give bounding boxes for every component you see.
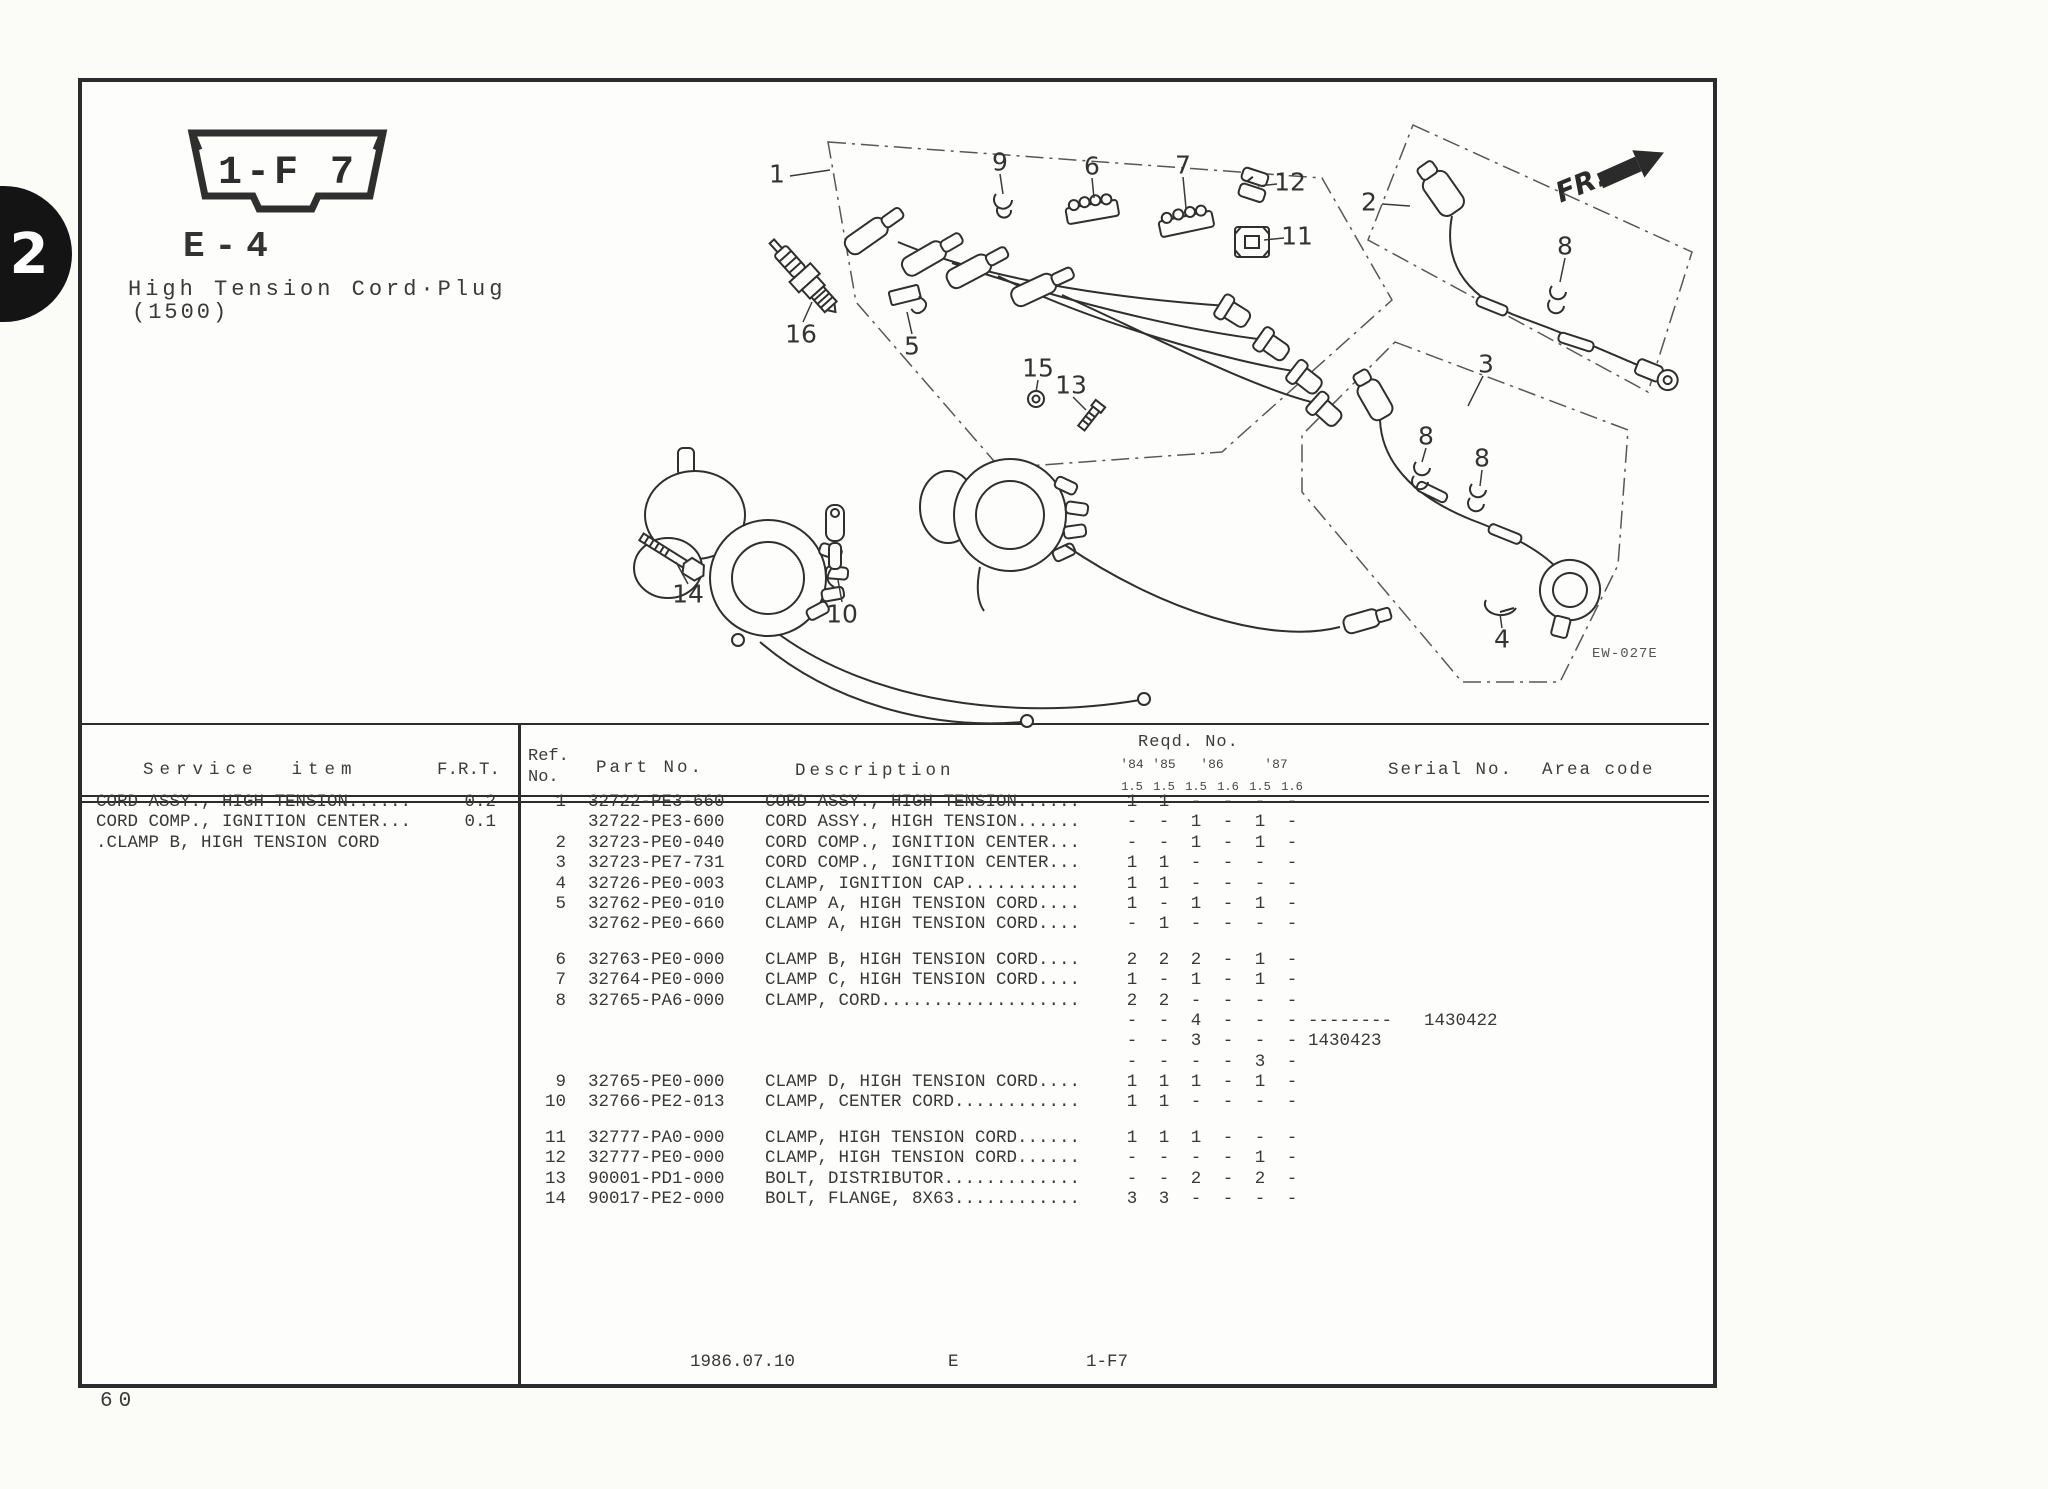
description: CORD COMP., IGNITION CENTER... <box>765 853 1080 873</box>
callout-9: 9 <box>992 148 1008 177</box>
qty: 2 <box>1180 1169 1212 1189</box>
qty: 4 <box>1180 1011 1212 1031</box>
description: CORD ASSY., HIGH TENSION...... <box>765 812 1080 832</box>
qty: - <box>1212 914 1244 934</box>
qty: 3 <box>1244 1052 1276 1072</box>
part-no: 90017-PE2-000 <box>588 1189 725 1209</box>
qty: 1 <box>1180 894 1212 914</box>
description: CLAMP C, HIGH TENSION CORD.... <box>765 970 1080 990</box>
qty: 1 <box>1148 792 1180 812</box>
qty: - <box>1212 1052 1244 1072</box>
qty: - <box>1276 1128 1308 1148</box>
callout-8b: 8 <box>1418 422 1434 451</box>
qty: - <box>1148 894 1180 914</box>
part-no-header: Part No. <box>596 758 704 778</box>
qty: - <box>1180 853 1212 873</box>
qty: - <box>1244 1128 1276 1148</box>
part-no: 32722-PE3-600 <box>588 812 725 832</box>
qty: - <box>1148 1148 1180 1168</box>
part-no: 32764-PE0-000 <box>588 970 725 990</box>
page-title: E-4 <box>183 226 278 267</box>
footer-section: E <box>948 1352 959 1372</box>
ref-header: Ref. <box>528 747 569 766</box>
qty: 1 <box>1244 812 1276 832</box>
qty: 2 <box>1116 991 1148 1011</box>
callout-3: 3 <box>1478 350 1494 379</box>
qty: - <box>1180 792 1212 812</box>
table-row: 10 32766-PE2-013 CLAMP, CENTER CORD.....… <box>0 1092 2048 1112</box>
qty: - <box>1180 1148 1212 1168</box>
qty: - <box>1148 970 1180 990</box>
qty: - <box>1116 1011 1148 1031</box>
qty: - <box>1212 1031 1244 1051</box>
qty: - <box>1276 894 1308 914</box>
qty: 1 <box>1244 970 1276 990</box>
qty: - <box>1148 1031 1180 1051</box>
description: CLAMP A, HIGH TENSION CORD.... <box>765 914 1080 934</box>
qty: - <box>1276 991 1308 1011</box>
qty: 1 <box>1148 914 1180 934</box>
qty: - <box>1276 1072 1308 1092</box>
qty: 1 <box>1180 1128 1212 1148</box>
qty: 3 <box>1180 1031 1212 1051</box>
ref-no: 5 <box>520 894 566 914</box>
qty: - <box>1116 833 1148 853</box>
qty: 1 <box>1116 792 1148 812</box>
description: CLAMP, HIGH TENSION CORD...... <box>765 1128 1080 1148</box>
part-no: 32765-PE0-000 <box>588 1072 725 1092</box>
callout-15: 15 <box>1022 354 1054 383</box>
ref-no: 3 <box>520 853 566 873</box>
qty: - <box>1148 1052 1180 1072</box>
callout-4: 4 <box>1494 625 1510 654</box>
qty: - <box>1180 1052 1212 1072</box>
qty: 1 <box>1116 874 1148 894</box>
qty: - <box>1212 792 1244 812</box>
ref-no: 10 <box>520 1092 566 1112</box>
qty: 3 <box>1116 1189 1148 1209</box>
qty: 1 <box>1244 1148 1276 1168</box>
qty: - <box>1212 1169 1244 1189</box>
qty: - <box>1180 991 1212 1011</box>
part-no: 32722-PE3-660 <box>588 792 725 812</box>
qty: 2 <box>1180 950 1212 970</box>
section-index-number: 2 <box>10 222 49 287</box>
table-row: 32722-PE3-600 CORD ASSY., HIGH TENSION..… <box>0 812 2048 832</box>
table-row: --3--- 1430423 <box>0 1031 2048 1051</box>
page-number: 60 <box>100 1390 137 1413</box>
description: CLAMP, CENTER CORD............ <box>765 1092 1080 1112</box>
qty: 1 <box>1116 970 1148 990</box>
qty: 2 <box>1148 950 1180 970</box>
qty: - <box>1148 812 1180 832</box>
qty: 1 <box>1148 1092 1180 1112</box>
qty: - <box>1244 1092 1276 1112</box>
qty: 1 <box>1180 812 1212 832</box>
qty: - <box>1276 1189 1308 1209</box>
qty: - <box>1276 853 1308 873</box>
part-no: 32777-PA0-000 <box>588 1128 725 1148</box>
callout-8a: 8 <box>1557 232 1573 261</box>
part-no: 90001-PD1-000 <box>588 1169 725 1189</box>
qty: - <box>1212 812 1244 832</box>
table-top-rule <box>78 723 1709 725</box>
callout-7: 7 <box>1175 151 1191 180</box>
table-row: 3 32723-PE7-731 CORD COMP., IGNITION CEN… <box>0 853 2048 873</box>
qty: - <box>1212 874 1244 894</box>
qty: - <box>1148 1011 1180 1031</box>
table-row: 2 32723-PE0-040 CORD COMP., IGNITION CEN… <box>0 833 2048 853</box>
qty: - <box>1276 1011 1308 1031</box>
serial-no: -------- <box>1308 1011 1392 1031</box>
ref-no: 2 <box>520 833 566 853</box>
qty: - <box>1276 792 1308 812</box>
callout-16: 16 <box>785 320 817 349</box>
ref-no: 12 <box>520 1148 566 1168</box>
description: CLAMP B, HIGH TENSION CORD.... <box>765 950 1080 970</box>
qty: - <box>1276 1052 1308 1072</box>
part-no: 32726-PE0-003 <box>588 874 725 894</box>
qty: 1 <box>1116 894 1148 914</box>
ref-no: 9 <box>520 1072 566 1092</box>
ref-no: 13 <box>520 1169 566 1189</box>
qty: 1 <box>1244 950 1276 970</box>
qty: 1 <box>1148 1072 1180 1092</box>
callout-6: 6 <box>1084 152 1100 181</box>
service-item-header: Service item <box>143 760 358 780</box>
table-row: 14 90017-PE2-000 BOLT, FLANGE, 8X63.....… <box>0 1189 2048 1209</box>
part-no: 32766-PE2-013 <box>588 1092 725 1112</box>
qty: 1 <box>1148 1128 1180 1148</box>
table-row: 1 32722-PE3-660 CORD ASSY., HIGH TENSION… <box>0 792 2048 812</box>
qty: - <box>1180 914 1212 934</box>
qty: - <box>1212 1072 1244 1092</box>
table-row: 6 32763-PE0-000 CLAMP B, HIGH TENSION CO… <box>0 950 2048 970</box>
diagram-image-code: EW-027E <box>1592 646 1658 662</box>
qty: 1 <box>1244 894 1276 914</box>
serial-no-header: Serial No. <box>1388 760 1513 780</box>
part-no: 32723-PE7-731 <box>588 853 725 873</box>
qty: - <box>1244 874 1276 894</box>
qty: - <box>1276 1169 1308 1189</box>
qty: - <box>1244 914 1276 934</box>
callout-12: 12 <box>1274 168 1306 197</box>
year-header-85: '85 <box>1144 757 1184 772</box>
qty: 2 <box>1116 950 1148 970</box>
qty: - <box>1276 1148 1308 1168</box>
callout-5: 5 <box>904 332 920 361</box>
page-subtitle: High Tension Cord·Plug <box>128 277 506 302</box>
qty: 1 <box>1180 833 1212 853</box>
callout-1: 1 <box>769 160 785 189</box>
qty: 1 <box>1148 874 1180 894</box>
qty: 1 <box>1180 970 1212 990</box>
qty: - <box>1276 874 1308 894</box>
table-row: 9 32765-PE0-000 CLAMP D, HIGH TENSION CO… <box>0 1072 2048 1092</box>
callout-14: 14 <box>672 580 704 609</box>
qty: - <box>1276 812 1308 832</box>
qty: - <box>1276 950 1308 970</box>
frt-header: F.R.T. <box>437 760 500 780</box>
table-row: 13 90001-PD1-000 BOLT, DISTRIBUTOR......… <box>0 1169 2048 1189</box>
qty: 1 <box>1116 1128 1148 1148</box>
serial-no: 1430423 <box>1308 1031 1382 1051</box>
qty: 3 <box>1148 1189 1180 1209</box>
ref-no: 11 <box>520 1128 566 1148</box>
qty: - <box>1212 1011 1244 1031</box>
section-index-tab: 2 <box>0 186 72 322</box>
part-no: 32763-PE0-000 <box>588 950 725 970</box>
qty: - <box>1212 894 1244 914</box>
qty: 1 <box>1116 853 1148 873</box>
qty: - <box>1148 833 1180 853</box>
qty: - <box>1116 1169 1148 1189</box>
description: CLAMP, IGNITION CAP........... <box>765 874 1080 894</box>
ref-no: 1 <box>520 792 566 812</box>
ref-no-header: No. <box>528 768 559 787</box>
qty: - <box>1244 1189 1276 1209</box>
qty: - <box>1116 1031 1148 1051</box>
qty: - <box>1276 970 1308 990</box>
qty: - <box>1148 1169 1180 1189</box>
qty: - <box>1212 1092 1244 1112</box>
callout-10: 10 <box>826 600 858 629</box>
qty: - <box>1276 1031 1308 1051</box>
page-subtitle-model: (1500) <box>132 300 229 325</box>
ref-no: 7 <box>520 970 566 990</box>
description: BOLT, FLANGE, 8X63............ <box>765 1189 1080 1209</box>
part-no: 32762-PE0-660 <box>588 914 725 934</box>
description: CLAMP, CORD................... <box>765 991 1080 1011</box>
part-no: 32765-PA6-000 <box>588 991 725 1011</box>
footer-fiche: 1-F7 <box>1086 1352 1128 1372</box>
description: BOLT, DISTRIBUTOR............. <box>765 1169 1080 1189</box>
qty: 1 <box>1244 833 1276 853</box>
qty: - <box>1212 853 1244 873</box>
ref-no: 6 <box>520 950 566 970</box>
qty: - <box>1180 874 1212 894</box>
year-header-87: '87 <box>1256 757 1296 772</box>
qty: - <box>1212 1148 1244 1168</box>
part-no: 32762-PE0-010 <box>588 894 725 914</box>
qty: - <box>1212 1128 1244 1148</box>
qty: - <box>1276 833 1308 853</box>
qty: 1 <box>1116 1072 1148 1092</box>
qty: - <box>1212 950 1244 970</box>
qty: - <box>1116 1148 1148 1168</box>
qty: - <box>1244 853 1276 873</box>
part-no: 32723-PE0-040 <box>588 833 725 853</box>
table-row: 8 32765-PA6-000 CLAMP, CORD.............… <box>0 991 2048 1011</box>
qty: - <box>1180 1092 1212 1112</box>
serial-no: 1430422 <box>1424 1011 1498 1031</box>
callout-2: 2 <box>1361 188 1377 217</box>
table-row: 32762-PE0-660 CLAMP A, HIGH TENSION CORD… <box>0 914 2048 934</box>
qty: - <box>1212 1189 1244 1209</box>
qty: 1 <box>1180 1072 1212 1092</box>
ref-no: 14 <box>520 1189 566 1209</box>
description: CORD ASSY., HIGH TENSION...... <box>765 792 1080 812</box>
description: CORD COMP., IGNITION CENTER... <box>765 833 1080 853</box>
table-row: ----3- <box>0 1052 2048 1072</box>
table-row: 11 32777-PA0-000 CLAMP, HIGH TENSION COR… <box>0 1128 2048 1148</box>
callout-8c: 8 <box>1474 444 1490 473</box>
qty: - <box>1244 1011 1276 1031</box>
qty: - <box>1212 833 1244 853</box>
qty: 1 <box>1244 1072 1276 1092</box>
year-header-86: '86 <box>1192 757 1232 772</box>
ref-no: 8 <box>520 991 566 1011</box>
description: CLAMP, HIGH TENSION CORD...... <box>765 1148 1080 1168</box>
qty: 2 <box>1244 1169 1276 1189</box>
part-no: 32777-PE0-000 <box>588 1148 725 1168</box>
qty: 2 <box>1148 991 1180 1011</box>
parts-table: 1 32722-PE3-660 CORD ASSY., HIGH TENSION… <box>0 792 2048 1209</box>
qty: - <box>1212 970 1244 990</box>
description: CLAMP D, HIGH TENSION CORD.... <box>765 1072 1080 1092</box>
table-row: 4 32726-PE0-003 CLAMP, IGNITION CAP.....… <box>0 874 2048 894</box>
qty: - <box>1116 914 1148 934</box>
table-row: 12 32777-PE0-000 CLAMP, HIGH TENSION COR… <box>0 1148 2048 1168</box>
description: CLAMP A, HIGH TENSION CORD.... <box>765 894 1080 914</box>
qty: - <box>1180 1189 1212 1209</box>
qty: - <box>1276 914 1308 934</box>
description-header: Description <box>795 761 955 781</box>
table-row: 5 32762-PE0-010 CLAMP A, HIGH TENSION CO… <box>0 894 2048 914</box>
ref-no: 4 <box>520 874 566 894</box>
table-row: 7 32764-PE0-000 CLAMP C, HIGH TENSION CO… <box>0 970 2048 990</box>
callout-13: 13 <box>1055 371 1087 400</box>
qty: - <box>1116 812 1148 832</box>
table-row: --4--- -------- 1430422 <box>0 1011 2048 1031</box>
qty: 1 <box>1116 1092 1148 1112</box>
area-code-header: Area code <box>1542 760 1655 780</box>
footer-date: 1986.07.10 <box>690 1352 795 1372</box>
qty: - <box>1116 1052 1148 1072</box>
qty: - <box>1212 991 1244 1011</box>
qty: - <box>1244 1031 1276 1051</box>
qty: 1 <box>1148 853 1180 873</box>
callout-11: 11 <box>1281 222 1313 251</box>
qty: - <box>1244 991 1276 1011</box>
qty: - <box>1276 1092 1308 1112</box>
qty: - <box>1244 792 1276 812</box>
reqd-no-header: Reqd. No. <box>1138 733 1239 752</box>
